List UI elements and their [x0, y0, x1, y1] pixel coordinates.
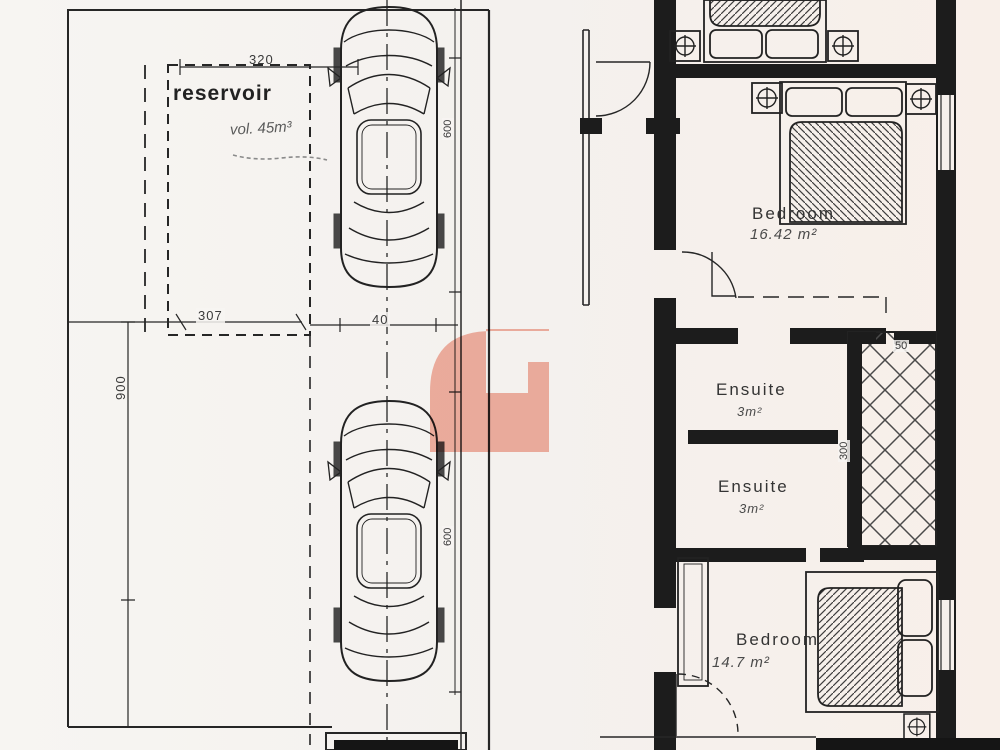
room-area-ensuite-2: 3m²: [739, 501, 764, 516]
room-label-ensuite-1: Ensuite: [716, 380, 787, 400]
reservoir-label: reservoir: [173, 82, 272, 106]
volume-note: vol. 45m³: [230, 118, 292, 138]
dim-top-width: 320: [249, 52, 274, 67]
dim-side-width: 307: [196, 308, 225, 323]
dim-car-length-2: 600: [442, 526, 454, 548]
dim-length: 900: [113, 375, 128, 400]
dim-car-length-1: 600: [442, 118, 454, 140]
dim-shaft-opening: 50: [893, 340, 909, 352]
room-area-bedroom-1: 16.42 m²: [750, 226, 817, 243]
dim-car-gap: 40: [370, 312, 390, 327]
room-area-ensuite-1: 3m²: [737, 404, 762, 419]
room-area-bedroom-2: 14.7 m²: [712, 654, 770, 671]
dim-shaft-depth: 300: [838, 440, 850, 462]
floor-plan-scan: reservoir vol. 45m³ 320 307 40 900 600 6…: [0, 0, 1000, 750]
room-label-ensuite-2: Ensuite: [718, 477, 789, 497]
room-label-bedroom-1: Bedroom: [752, 204, 835, 224]
room-label-bedroom-2: Bedroom: [736, 630, 819, 650]
brand-watermark-g-icon: [0, 0, 1000, 750]
